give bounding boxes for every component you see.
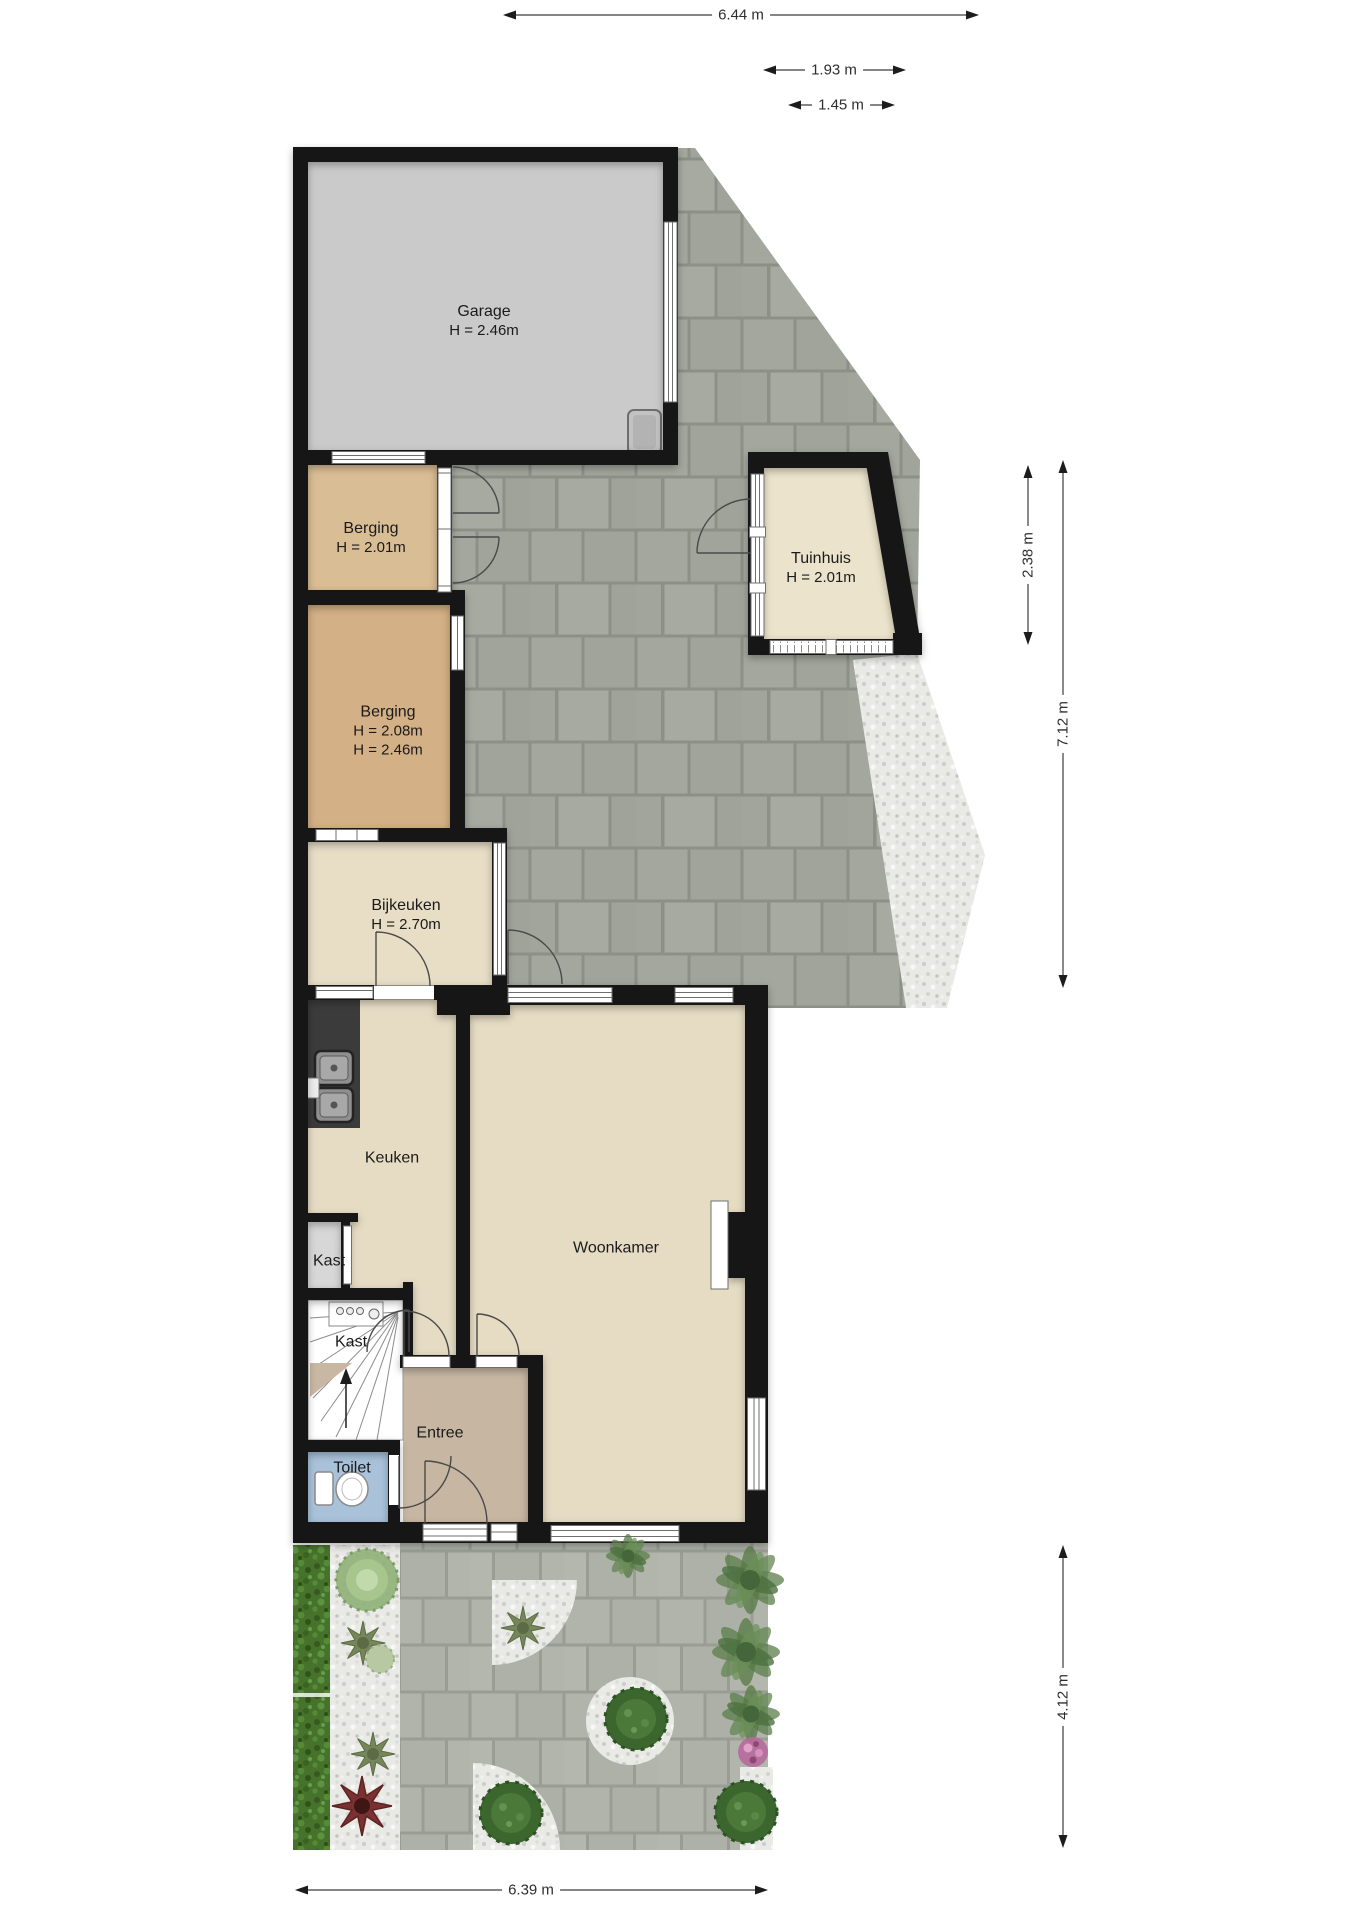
garage-rear-window <box>332 452 425 464</box>
kast-floor <box>308 1222 341 1296</box>
shrub-right-2-icon <box>712 1618 780 1686</box>
appliance-shelf-icon <box>329 1302 383 1326</box>
dim-top-total: 6.44 m <box>712 7 770 24</box>
garage-mat-icon <box>628 410 661 454</box>
dim-rear-depth: 7.12 m <box>1055 695 1072 753</box>
woonkamer-side-window <box>748 1398 766 1490</box>
plant-olive-small-icon <box>351 1732 395 1776</box>
plant-quarter-top-icon <box>501 1606 545 1650</box>
shrub-top-icon <box>606 1534 650 1578</box>
dim-bottom-width: 6.39 m <box>502 1882 560 1899</box>
entree-floor <box>403 1363 528 1522</box>
kast-door <box>344 1226 352 1284</box>
plant-fluffy-icon <box>336 1549 398 1611</box>
berging1-door-opening <box>438 468 451 592</box>
bush-quarter-bottom-icon <box>480 1782 542 1844</box>
bijkeuken-window <box>494 843 506 975</box>
berging2-floor <box>308 605 450 828</box>
dim-tuinhuis-width-narrow: 1.45 m <box>812 97 870 114</box>
bijkeuken-keuken-window <box>316 987 373 999</box>
toilet-icon <box>315 1472 368 1506</box>
bijkeuken-door-opening <box>374 986 434 1000</box>
plant-pale-icon <box>366 1645 394 1673</box>
bush-right-icon <box>715 1781 777 1843</box>
front-door-threshold <box>423 1524 487 1541</box>
garden-paving <box>400 1543 768 1850</box>
plant-pink-icon <box>738 1737 768 1767</box>
woonkamer-rear-window-1 <box>508 988 612 1003</box>
berging1-floor <box>308 465 437 590</box>
bijkeuken-floor <box>308 842 492 985</box>
entree-woonkamer-opening <box>476 1357 517 1368</box>
tuinhuis-window <box>751 474 764 636</box>
floorplan-page: Garage H = 2.46m Berging H = 2.01m Bergi… <box>0 0 1358 1920</box>
woonkamer-front-window <box>551 1526 679 1542</box>
floorplan-drawing <box>0 0 1358 1920</box>
berging2-bijkeuken-window <box>316 830 378 841</box>
dim-garden-depth: 4.12 m <box>1055 1668 1072 1726</box>
dim-tuinhuis-width: 1.93 m <box>805 62 863 79</box>
hedge-strip <box>293 1545 330 1850</box>
toilet-door-opening <box>389 1455 399 1505</box>
garage-floor <box>308 162 663 450</box>
plant-red-spiky-icon <box>332 1776 392 1836</box>
garage-window <box>664 222 677 402</box>
bush-circle-icon <box>605 1688 667 1750</box>
dim-tuinhuis-depth: 2.38 m <box>1020 526 1037 584</box>
woonkamer-rear-window-2 <box>675 988 733 1003</box>
shrub-right-1-icon <box>716 1546 784 1614</box>
entree-keuken-opening <box>403 1357 450 1368</box>
shrub-right-3-icon <box>722 1685 780 1743</box>
radiator <box>711 1201 728 1289</box>
